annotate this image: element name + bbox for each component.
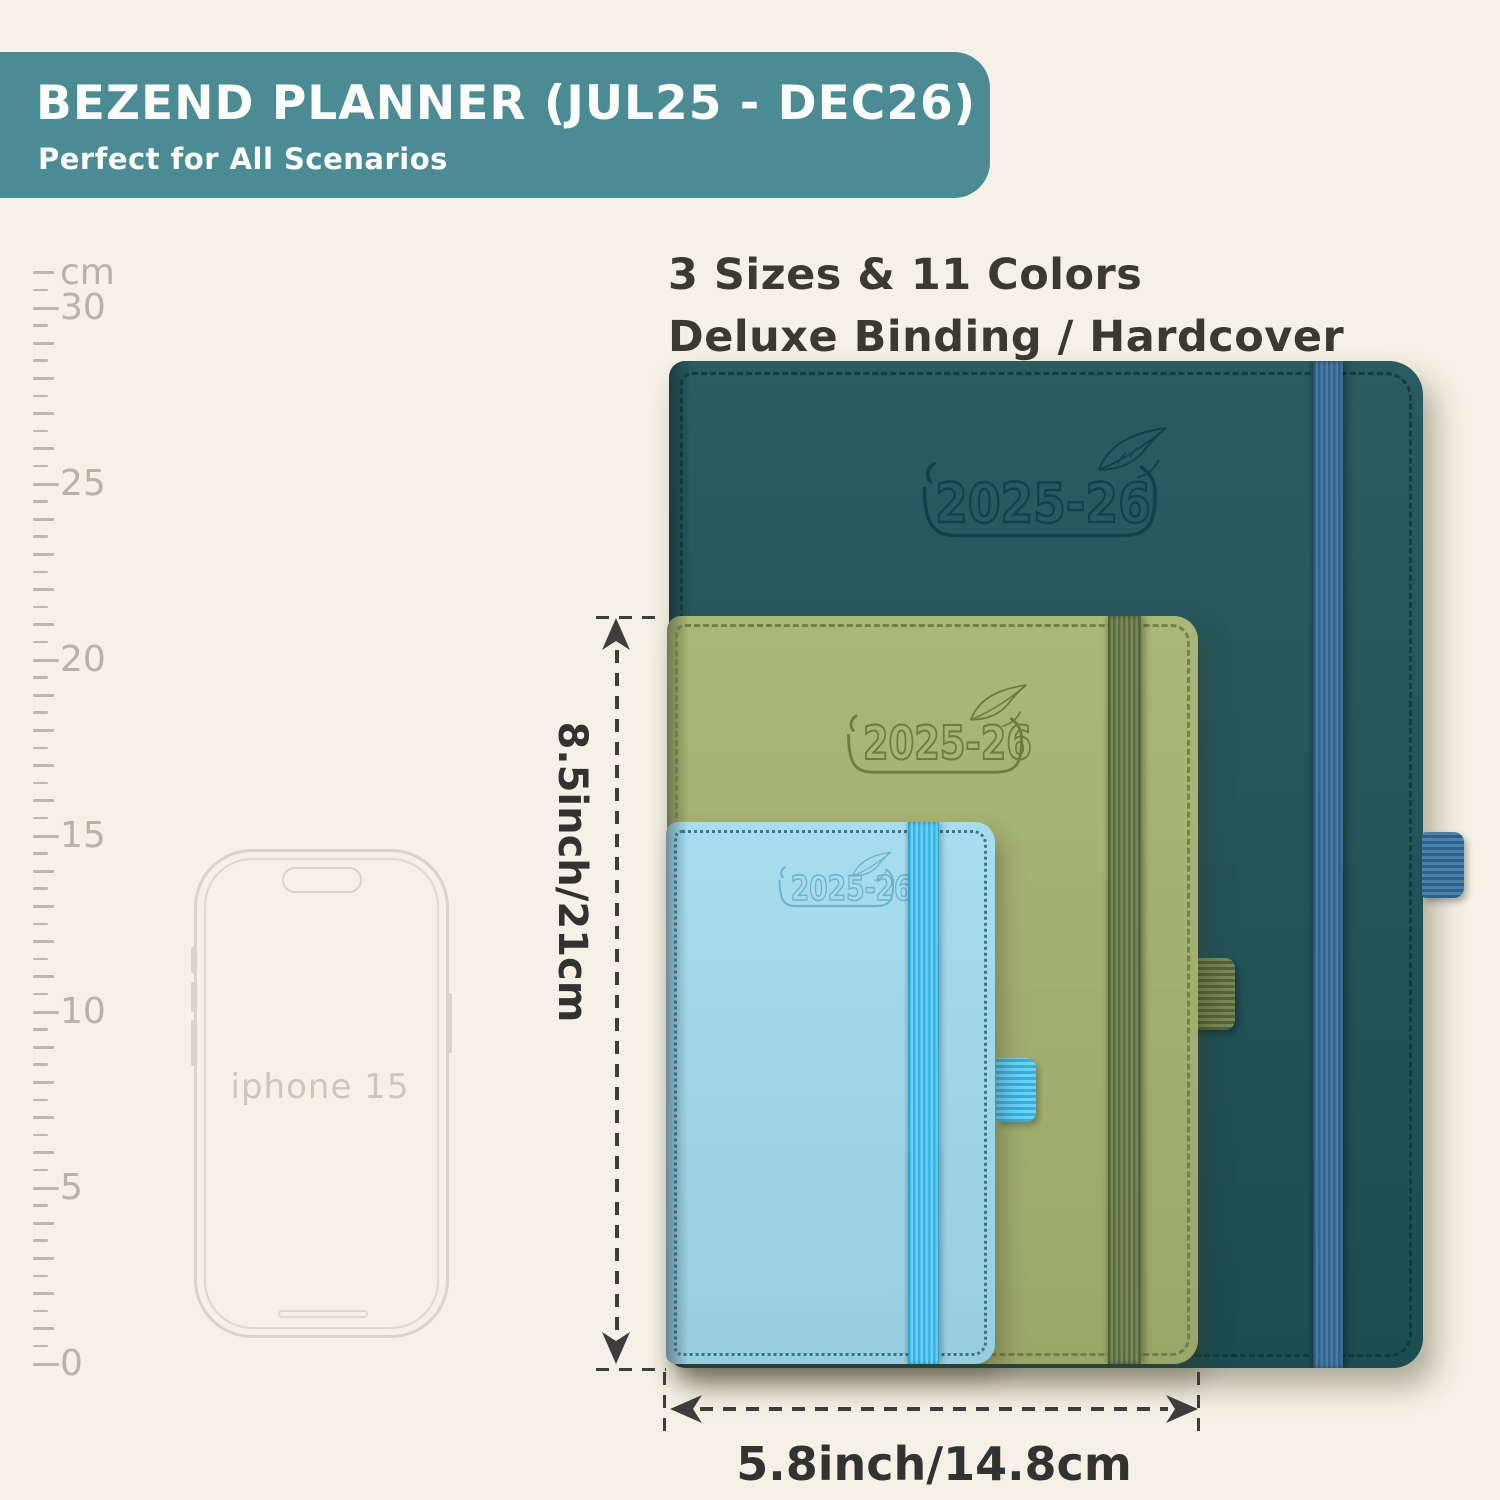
- ruler-tick: [33, 1046, 54, 1049]
- height-extension-line-bottom: [596, 1368, 666, 1371]
- ruler-tick: [33, 571, 48, 574]
- ruler-tick: [33, 271, 54, 274]
- planner-small: 2025-26: [666, 822, 995, 1364]
- year-emboss-large: 2025-26: [925, 472, 1162, 535]
- ruler-tick: [33, 395, 48, 398]
- ruler-tick: [33, 958, 48, 961]
- ruler-tick: [33, 359, 48, 362]
- ruler-tick: [33, 1204, 48, 1207]
- ruler-number: 25: [60, 463, 106, 504]
- ruler-tick: [33, 852, 48, 855]
- ruler-tick: [33, 606, 48, 609]
- banner-subtitle: Perfect for All Scenarios: [38, 142, 448, 176]
- ruler-tick: [33, 1327, 54, 1330]
- ruler-tick: [33, 905, 54, 908]
- height-dimension-label: 8.5inch/21cm: [549, 722, 595, 1023]
- ruler-tick: [33, 694, 54, 697]
- phone-speaker-slot: [278, 1310, 368, 1318]
- ruler-tick: [33, 377, 54, 380]
- ruler-number: 10: [60, 991, 106, 1032]
- width-extension-line-left: [663, 1372, 666, 1434]
- ruler-tick: [33, 1292, 54, 1295]
- ruler-tick: [33, 289, 48, 292]
- ruler-tick: [33, 1363, 59, 1366]
- ruler-tick: [33, 465, 48, 468]
- ruler-tick: [33, 1257, 54, 1260]
- ruler-tick: [33, 1151, 54, 1154]
- width-dimension-label: 5.8inch/14.8cm: [736, 1437, 1132, 1491]
- ruler-number: 20: [60, 639, 106, 680]
- ruler-tick: [33, 1099, 48, 1102]
- elastic-band-medium: [1108, 616, 1141, 1364]
- ruler-tick: [33, 1028, 48, 1031]
- phone-volume-up-button: [191, 982, 196, 1012]
- ruler-number: 15: [60, 815, 106, 856]
- ruler-tick: [33, 817, 48, 820]
- year-emboss-medium: 2025-26: [863, 716, 1007, 770]
- ruler-tick: [33, 1011, 59, 1014]
- iphone-outline: iphone 15: [190, 845, 456, 1341]
- ruler-tick: [33, 430, 48, 433]
- arrow-right-icon: [1166, 1395, 1198, 1423]
- ruler-tick: [33, 342, 54, 345]
- elastic-band-small: [908, 822, 939, 1364]
- pen-loop-large: [1422, 832, 1464, 898]
- height-dimension-line: [615, 650, 619, 1336]
- ruler-tick: [33, 1169, 48, 1172]
- banner-title: BEZEND PLANNER (JUL25 - DEC26): [36, 76, 966, 131]
- ruler-tick: [33, 975, 54, 978]
- headline: 3 Sizes & 11 Colors Deluxe Binding / Har…: [668, 244, 1344, 368]
- ruler-unit-label: cm: [60, 252, 115, 293]
- ruler-tick: [33, 923, 48, 926]
- ruler-tick: [33, 1081, 54, 1084]
- ruler-tick: [33, 676, 48, 679]
- ruler-tick: [33, 483, 59, 486]
- ruler-tick: [33, 887, 48, 890]
- arrow-left-icon: [670, 1395, 702, 1423]
- arrow-down-icon: [602, 1332, 630, 1364]
- ruler-tick: [33, 641, 48, 644]
- ruler-tick: [33, 447, 54, 450]
- ruler-tick: [33, 412, 54, 415]
- ruler-tick: [33, 659, 59, 662]
- banner: BEZEND PLANNER (JUL25 - DEC26) Perfect f…: [0, 52, 990, 198]
- headline-line1: 3 Sizes & 11 Colors: [668, 244, 1344, 306]
- phone-action-button: [191, 947, 196, 973]
- ruler-tick: [33, 553, 54, 556]
- ruler-tick: [33, 623, 54, 626]
- ruler-number: 0: [60, 1343, 83, 1384]
- ruler-tick: [33, 1275, 48, 1278]
- ruler-tick: [33, 1134, 48, 1137]
- feather-icon: [1093, 425, 1173, 479]
- ruler-tick: [33, 1310, 48, 1313]
- ruler-tick: [33, 764, 54, 767]
- ruler-tick: [33, 729, 54, 732]
- ruler-tick: [33, 307, 59, 310]
- ruler-number: 30: [60, 287, 106, 328]
- dynamic-island-outline: [282, 867, 362, 893]
- phone-label: iphone 15: [194, 1067, 446, 1107]
- ruler-tick: [33, 535, 48, 538]
- phone-power-button: [447, 993, 452, 1053]
- ruler-tick: [33, 324, 48, 327]
- ruler-tick: [33, 993, 48, 996]
- ruler-tick: [33, 1063, 48, 1066]
- ruler-tick: [33, 1187, 59, 1190]
- ruler-tick: [33, 711, 48, 714]
- ruler-tick: [33, 1116, 54, 1119]
- ruler-tick: [33, 835, 59, 838]
- width-dimension-line: [700, 1407, 1168, 1411]
- product-infographic: BEZEND PLANNER (JUL25 - DEC26) Perfect f…: [0, 0, 1500, 1500]
- ruler-tick: [33, 747, 48, 750]
- ruler-tick: [33, 1239, 48, 1242]
- elastic-band-large: [1313, 361, 1343, 1368]
- ruler-tick: [33, 782, 48, 785]
- ruler-number: 5: [60, 1167, 83, 1208]
- ruler-tick: [33, 588, 54, 591]
- arrow-up-icon: [602, 618, 630, 650]
- pen-loop-small: [996, 1058, 1036, 1122]
- phone-volume-down-button: [191, 1020, 196, 1066]
- ruler-tick: [33, 518, 54, 521]
- ruler-tick: [33, 799, 54, 802]
- ruler-tick: [33, 500, 48, 503]
- ruler-tick: [33, 940, 54, 943]
- headline-line2: Deluxe Binding / Hardcover: [668, 306, 1344, 368]
- ruler-tick: [33, 1345, 48, 1348]
- year-emboss-small: 2025-26: [791, 869, 881, 909]
- ruler-tick: [33, 1222, 54, 1225]
- ruler-tick: [33, 870, 54, 873]
